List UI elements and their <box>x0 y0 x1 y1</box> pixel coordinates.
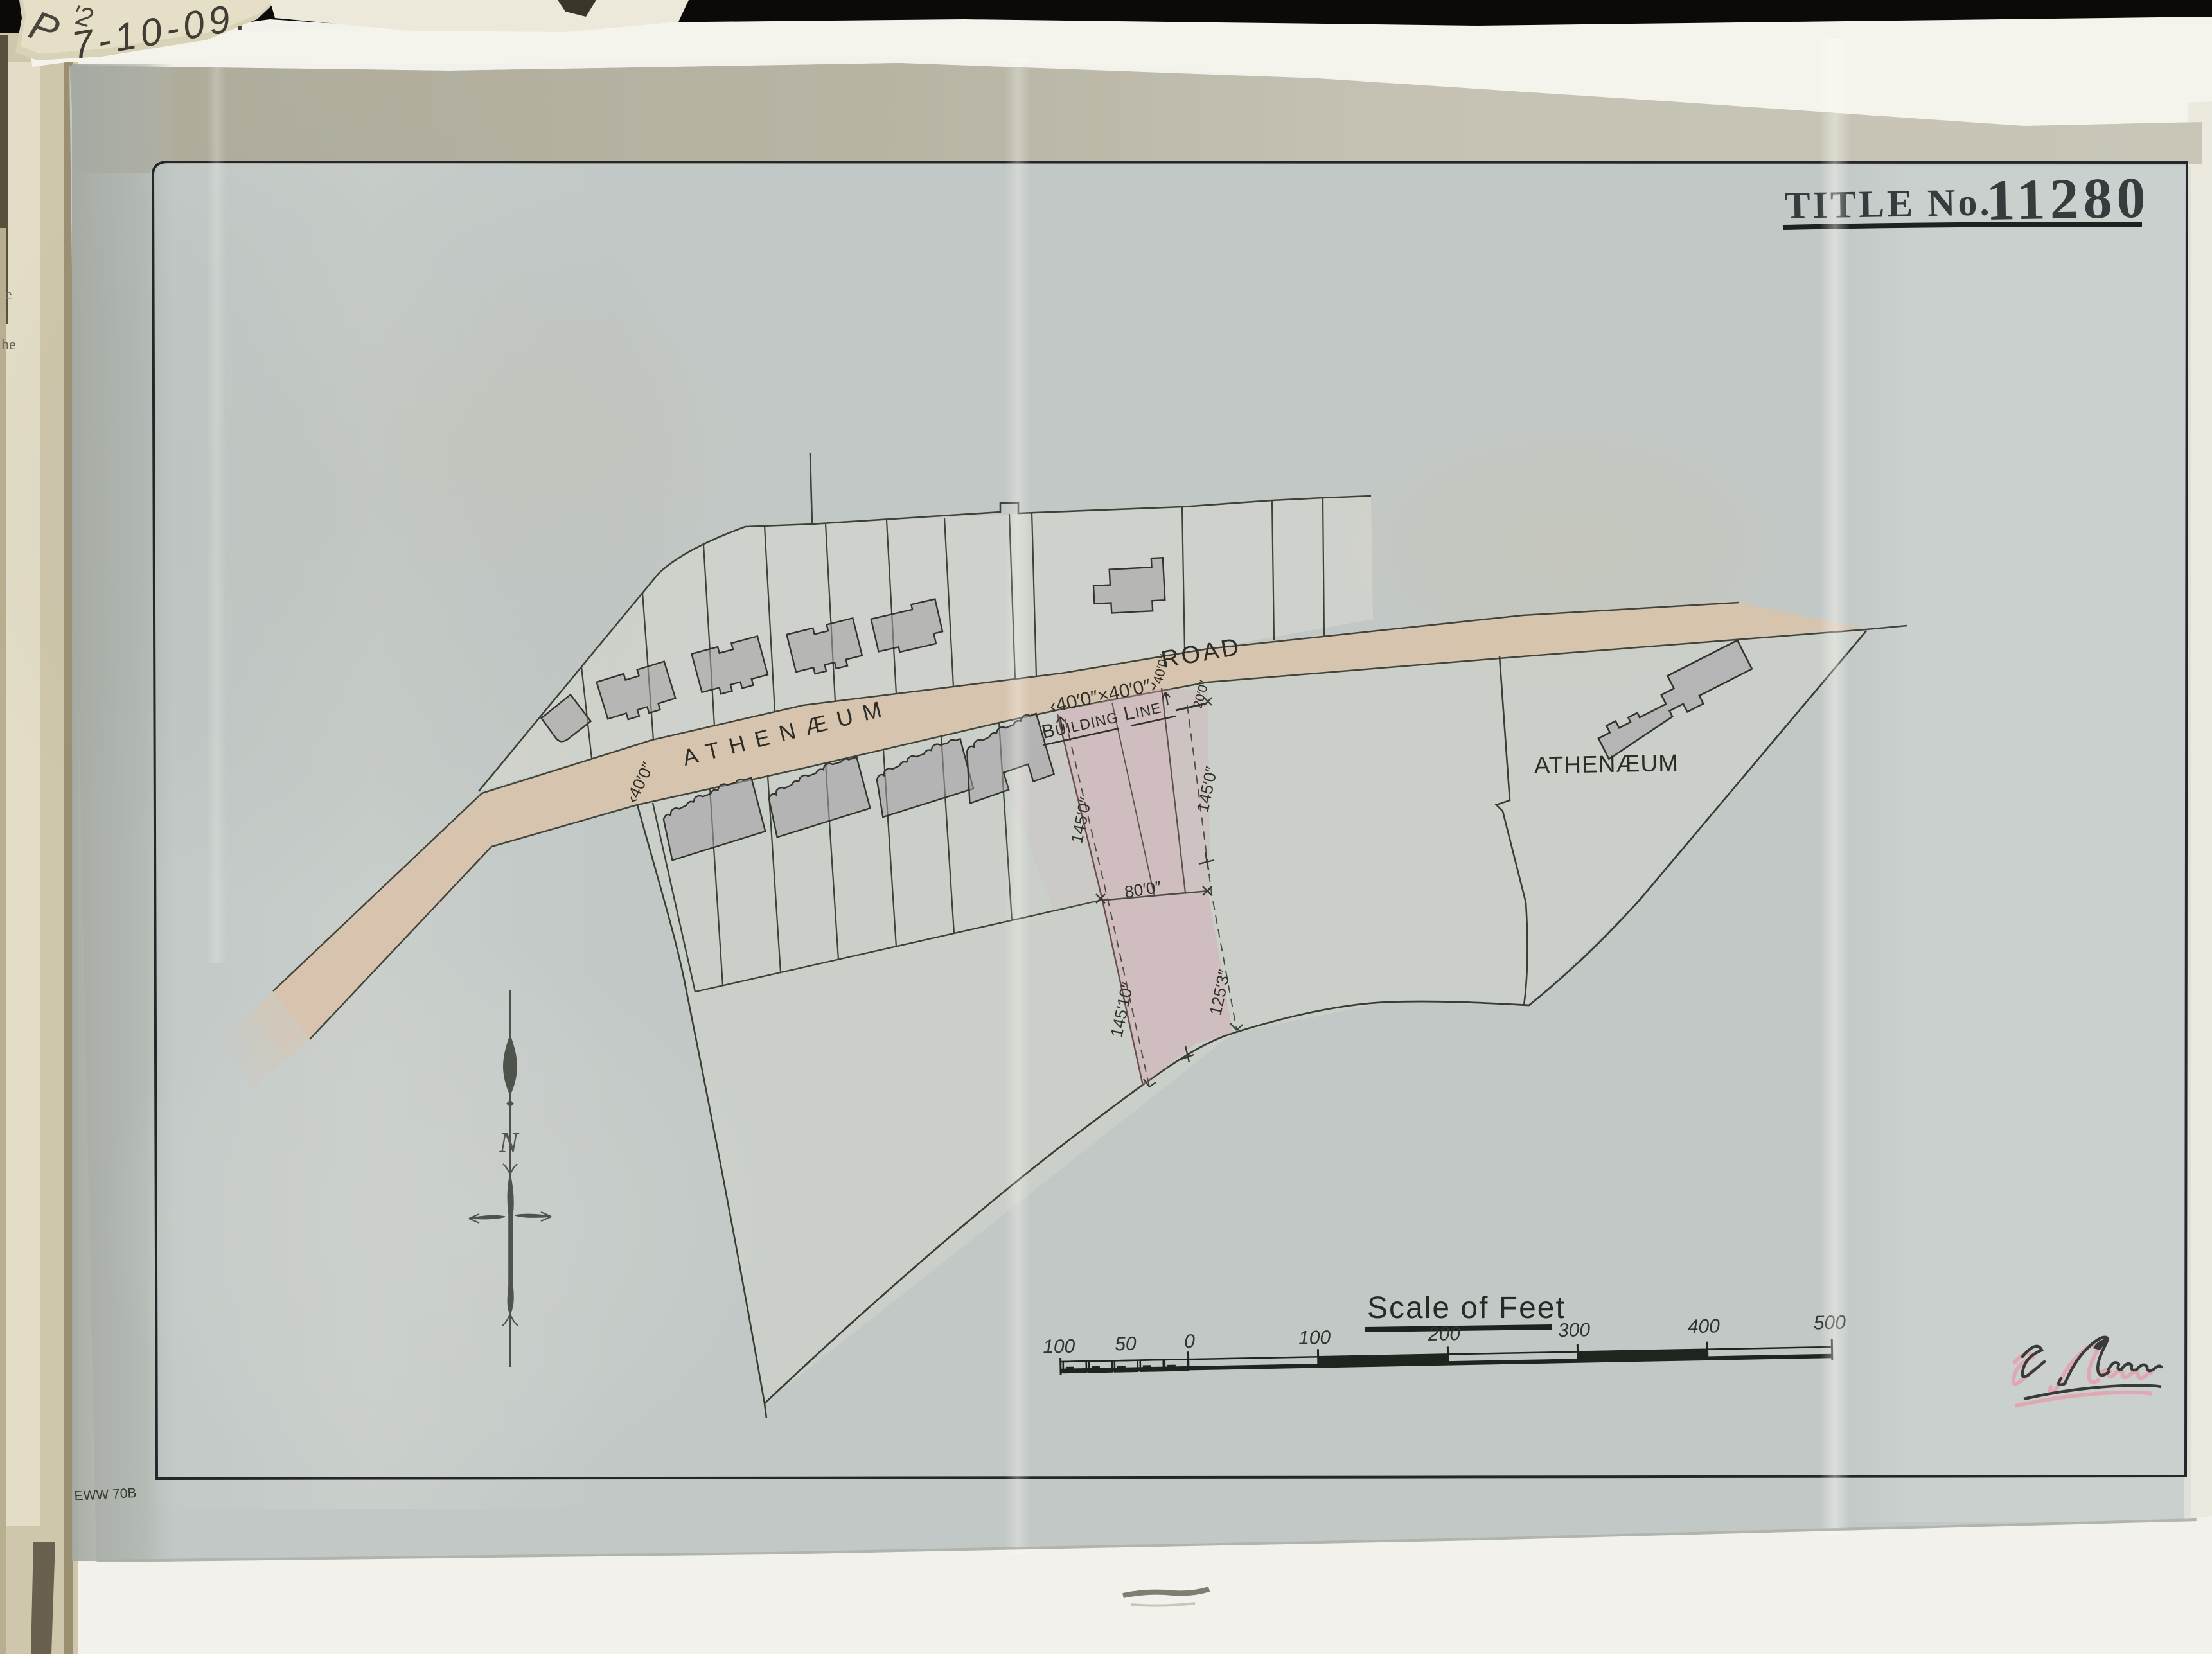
svg-text:100: 100 <box>1043 1336 1075 1358</box>
svg-text:50: 50 <box>1115 1333 1137 1355</box>
svg-text:ATHENÆUM: ATHENÆUM <box>1534 750 1679 779</box>
svg-text:400: 400 <box>1688 1315 1721 1337</box>
svg-text:N: N <box>499 1127 520 1158</box>
svg-text:TITLE No.: TITLE No. <box>1784 180 1992 227</box>
svg-text:200: 200 <box>1428 1323 1461 1345</box>
svg-text:300: 300 <box>1558 1319 1591 1341</box>
svg-text:0: 0 <box>1184 1331 1196 1352</box>
svg-text:Scale of Feet: Scale of Feet <box>1367 1291 1566 1325</box>
svg-text:100: 100 <box>1298 1327 1331 1349</box>
